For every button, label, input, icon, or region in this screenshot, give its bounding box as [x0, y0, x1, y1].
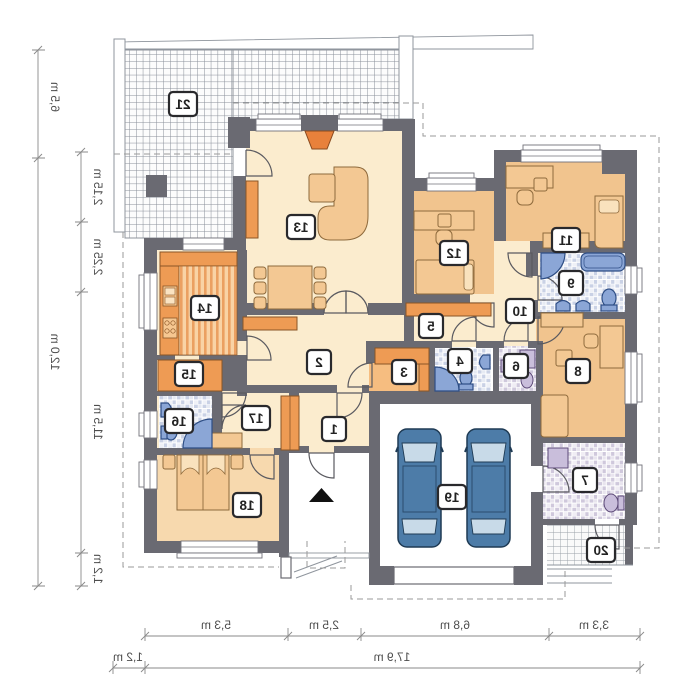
svg-text:6,8 m: 6,8 m [440, 618, 470, 632]
svg-text:6,5 m: 6,5 m [48, 82, 62, 112]
svg-text:2: 2 [315, 355, 323, 370]
svg-text:11: 11 [558, 233, 573, 248]
svg-text:15: 15 [181, 367, 197, 382]
svg-text:17: 17 [248, 411, 263, 426]
svg-text:3: 3 [400, 365, 408, 380]
svg-text:1: 1 [330, 422, 338, 437]
svg-text:2,15 m: 2,15 m [91, 169, 105, 206]
svg-text:2,25 m: 2,25 m [91, 239, 105, 276]
svg-text:2,5 m: 2,5 m [309, 618, 339, 632]
svg-text:12: 12 [446, 246, 461, 261]
svg-text:1,2 m: 1,2 m [91, 554, 105, 584]
svg-text:17,9 m: 17,9 m [374, 650, 411, 664]
svg-text:20: 20 [593, 543, 608, 558]
svg-text:19: 19 [444, 490, 459, 505]
svg-text:16: 16 [171, 414, 187, 429]
svg-text:6: 6 [512, 359, 520, 374]
svg-text:14: 14 [197, 301, 213, 316]
svg-text:7: 7 [581, 473, 589, 488]
svg-text:12,0 m: 12,0 m [48, 334, 62, 371]
svg-text:11,5 m: 11,5 m [91, 404, 105, 440]
svg-text:18: 18 [239, 498, 255, 513]
svg-text:13: 13 [293, 220, 309, 235]
svg-text:10: 10 [512, 304, 527, 319]
svg-text:9: 9 [567, 276, 575, 291]
svg-text:8: 8 [574, 364, 582, 379]
svg-text:21: 21 [175, 97, 191, 112]
svg-text:5: 5 [427, 319, 435, 334]
svg-text:5,3 m: 5,3 m [201, 618, 231, 632]
svg-text:1,2 m: 1,2 m [113, 650, 143, 664]
svg-text:3,3 m: 3,3 m [579, 618, 609, 632]
svg-text:4: 4 [456, 354, 464, 369]
